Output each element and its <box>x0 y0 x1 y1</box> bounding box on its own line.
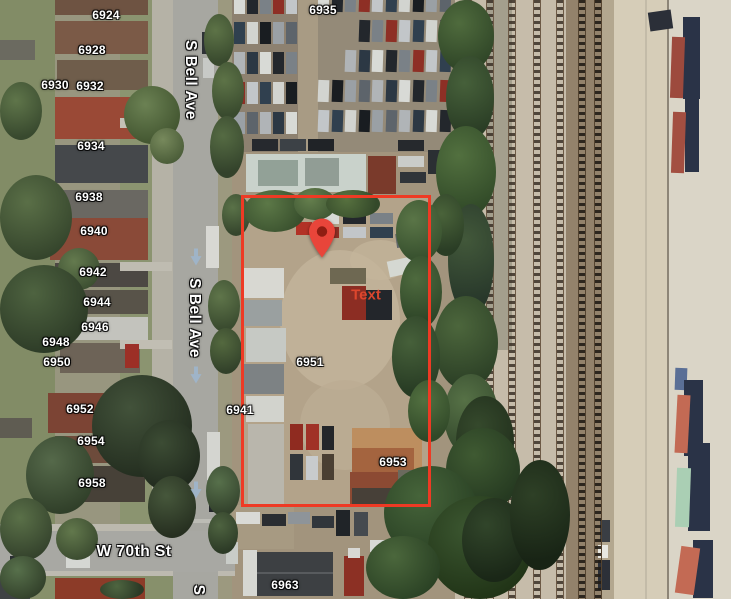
house-number-label: 6958 <box>78 476 106 490</box>
house-number-label: 6942 <box>79 265 107 279</box>
house-number-label: 6938 <box>75 190 103 204</box>
street-name-label: W 70th St <box>96 543 171 561</box>
house-number-label: 6953 <box>379 455 407 469</box>
one-way-arrow-icon <box>191 482 202 499</box>
map-labels: S Bell AveS Bell AveSW 70th St6924692869… <box>0 0 731 599</box>
street-name-label: S <box>189 585 207 596</box>
one-way-arrow-icon <box>191 367 202 384</box>
house-number-label: 6944 <box>83 295 111 309</box>
house-number-label: 6950 <box>43 355 71 369</box>
house-number-label: 6941 <box>226 403 254 417</box>
house-number-label: 6932 <box>76 79 104 93</box>
street-name-label: S Bell Ave <box>185 278 203 358</box>
house-number-label: 6934 <box>77 139 105 153</box>
house-number-label: 6935 <box>309 3 337 17</box>
satellite-map-canvas[interactable]: Text S Bell AveS Bell AveSW 70th St69246… <box>0 0 731 599</box>
house-number-label: 6946 <box>81 320 109 334</box>
house-number-label: 6930 <box>41 78 69 92</box>
house-number-label: 6928 <box>78 43 106 57</box>
house-number-label: 6940 <box>80 224 108 238</box>
house-number-label: 6951 <box>296 355 324 369</box>
house-number-label: 6948 <box>42 335 70 349</box>
one-way-arrow-icon <box>191 249 202 266</box>
house-number-label: 6963 <box>271 578 299 592</box>
house-number-label: 6924 <box>92 8 120 22</box>
house-number-label: 6952 <box>66 402 94 416</box>
street-name-label: S Bell Ave <box>181 40 199 120</box>
house-number-label: 6954 <box>77 434 105 448</box>
